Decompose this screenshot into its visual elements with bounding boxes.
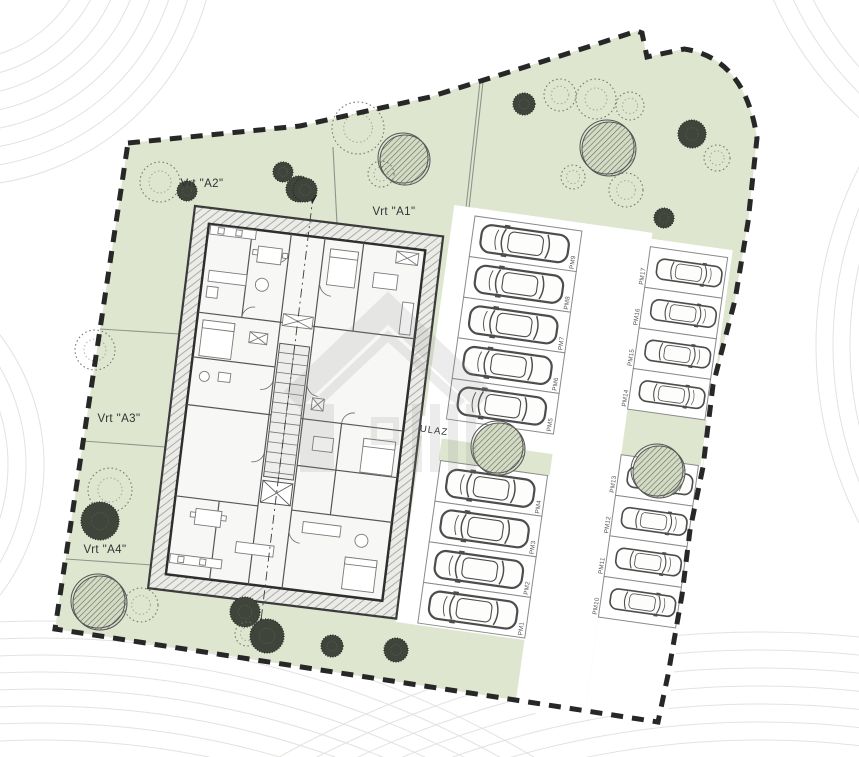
bush-icon: [293, 178, 317, 202]
bush-icon: [273, 162, 293, 182]
bush-icon: [654, 208, 674, 228]
bush-icon: [250, 619, 284, 653]
garden-label-a1: Vrt "A1": [373, 206, 416, 218]
bush-icon: [230, 597, 260, 627]
garden-label-a3: Vrt "A3": [98, 413, 141, 425]
bush-icon: [321, 635, 343, 657]
bush-icon: [513, 93, 535, 115]
site-plan-canvas: PM9PM8PM7PM6PM5PM4PM3PM2PM1 PM17PM16PM15…: [0, 0, 859, 757]
building-floorplan: [145, 180, 446, 643]
garden-label-a4: Vrt "A4": [84, 544, 127, 556]
bush-icon: [384, 638, 408, 662]
garden-label-a2: Vrt "A2": [181, 178, 224, 190]
bush-icon: [678, 120, 706, 148]
bush-icon: [81, 502, 119, 540]
site-plan: PM9PM8PM7PM6PM5PM4PM3PM2PM1 PM17PM16PM15…: [0, 0, 859, 757]
